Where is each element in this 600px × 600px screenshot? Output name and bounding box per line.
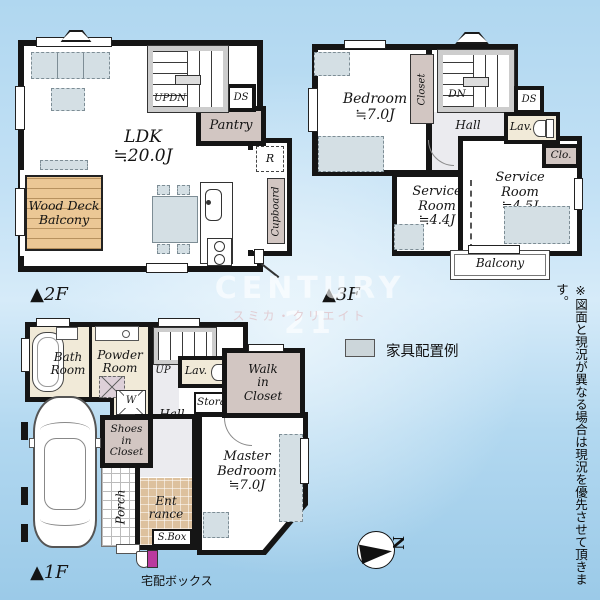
- car-mirror: [29, 438, 35, 448]
- roof-vent: [448, 32, 496, 44]
- window: [21, 338, 30, 372]
- furniture-chair: [177, 244, 190, 254]
- watermark-brand: CENTURY 21: [188, 271, 432, 305]
- furniture-chair: [157, 185, 170, 195]
- car-mirror: [95, 438, 101, 448]
- kitchen-faucet: [206, 200, 211, 205]
- furniture-coffee-table: [51, 88, 85, 111]
- kitchen-stove: [207, 238, 232, 266]
- car-outline: [33, 396, 97, 548]
- window: [574, 178, 583, 210]
- compass-north-letter: N: [391, 536, 407, 552]
- room-walk-in-closet: [222, 348, 305, 418]
- furniture-desk: [314, 52, 350, 76]
- kitchen-sink: [205, 189, 222, 221]
- window: [308, 88, 318, 132]
- window: [344, 40, 386, 49]
- room-2f-pantry: [196, 106, 266, 146]
- window: [468, 245, 520, 254]
- toilet-bowl: [533, 120, 546, 137]
- bath-vanity: [56, 327, 78, 340]
- label-porch: Porch: [113, 490, 127, 525]
- room-3f-clo: [542, 144, 580, 168]
- floor-plan-image: Pantry DS UPDN LDK ≒20.0J Wood Deck Balc…: [0, 0, 600, 600]
- partition-wall: [89, 326, 92, 398]
- furniture-chair: [177, 185, 190, 195]
- furniture-tv-board: [40, 160, 88, 170]
- fridge-space: [256, 146, 284, 172]
- stairs-3f: [438, 50, 514, 112]
- furniture-dining-table: [152, 196, 198, 243]
- floor-label-1f: ▲1F: [22, 563, 76, 583]
- boundary-wall-stub: [21, 487, 28, 505]
- window: [15, 188, 25, 236]
- label-3f-closet: Closet: [417, 73, 428, 105]
- washing-machine: [116, 390, 146, 415]
- delivery-box-accent-icon: [147, 550, 158, 568]
- toilet-tank: [546, 119, 554, 138]
- powder-counter: [95, 326, 139, 341]
- legend-furniture-label: 家具配置例: [386, 340, 476, 357]
- room-wood-deck-balcony: [25, 175, 103, 251]
- legend-furniture-swatch: [345, 339, 375, 357]
- room-shoes-in-closet: [100, 415, 153, 468]
- boundary-wall-stub: [21, 422, 28, 440]
- room-3f-ds: [514, 86, 544, 114]
- furniture-dresser: [203, 512, 229, 538]
- furniture-desk: [394, 224, 424, 250]
- room-divider-dashed: [470, 180, 472, 250]
- window: [146, 263, 188, 273]
- balcony-3f: [450, 250, 550, 280]
- disclaimer-note: ※図面と現況が異なる場合は現況を優先させて頂きます。: [568, 283, 590, 600]
- window: [248, 344, 284, 352]
- label-cupboard: Cupboard: [271, 186, 282, 236]
- furniture-bed: [504, 206, 570, 244]
- room-2f-ds: [226, 84, 256, 112]
- label-delivery-box: 宅配ボックス: [141, 572, 221, 587]
- door-opening: [254, 249, 264, 264]
- furniture-bed: [318, 136, 384, 172]
- window: [158, 318, 200, 327]
- window: [300, 438, 309, 484]
- window: [36, 318, 70, 327]
- watermark-company: スミカ・クリエイト: [230, 307, 370, 325]
- furniture-chair: [157, 244, 170, 254]
- stairs-2f: [148, 46, 228, 112]
- window: [15, 86, 25, 130]
- boundary-wall-stub: [21, 524, 28, 542]
- bathtub: [32, 332, 64, 392]
- furniture-sofa: [31, 52, 110, 79]
- shoe-box: [152, 529, 192, 546]
- floor-label-2f: ▲2F: [22, 285, 76, 305]
- hall-1f-floor: [153, 364, 179, 417]
